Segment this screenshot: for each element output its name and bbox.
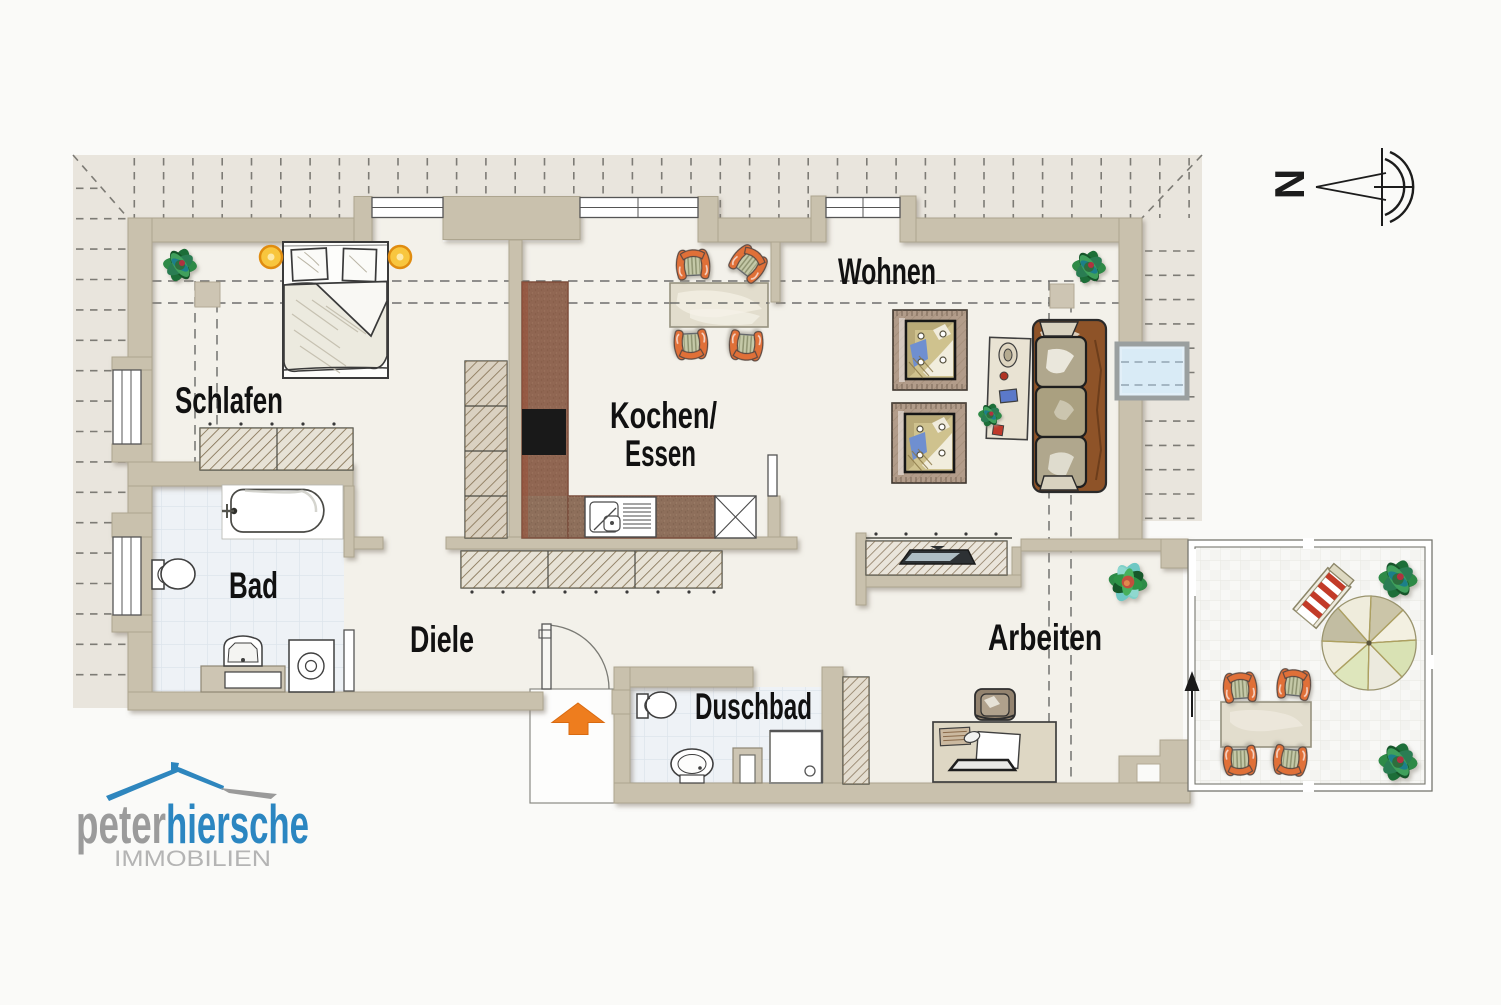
- svg-text:N: N: [1266, 169, 1313, 199]
- svg-text:Duschbad: Duschbad: [695, 686, 812, 727]
- svg-text:IMMOBILIEN: IMMOBILIEN: [114, 846, 271, 871]
- svg-text:Schlafen: Schlafen: [175, 380, 283, 421]
- svg-text:Essen: Essen: [625, 433, 696, 474]
- svg-text:Arbeiten: Arbeiten: [988, 617, 1102, 658]
- svg-text:Kochen/: Kochen/: [610, 395, 717, 436]
- svg-text:Bad: Bad: [229, 565, 278, 606]
- svg-text:Wohnen: Wohnen: [838, 251, 936, 292]
- svg-text:Diele: Diele: [410, 619, 474, 660]
